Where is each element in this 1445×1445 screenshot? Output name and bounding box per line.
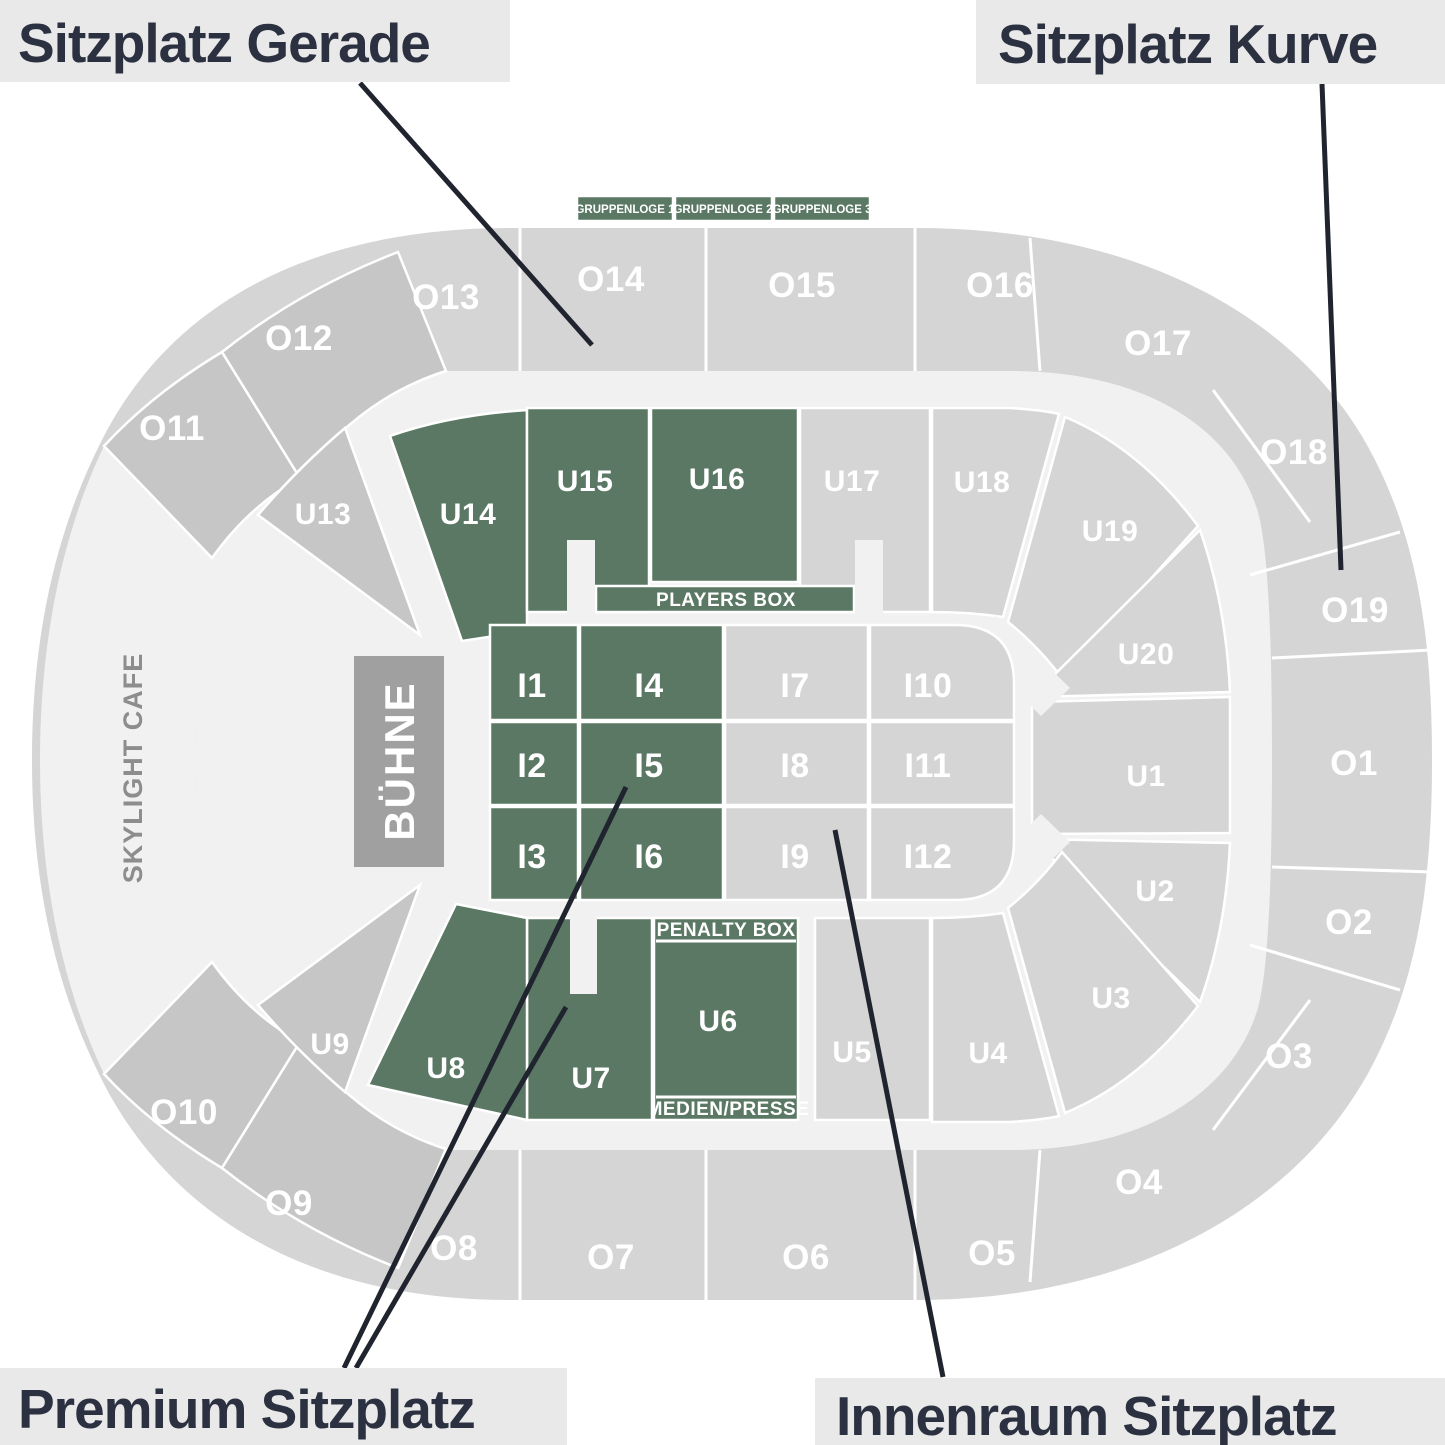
section-o8-label[interactable]: O8 <box>430 1229 478 1268</box>
gruppenloge-3-label: GRUPPENLOGE 3 <box>772 204 871 216</box>
section-u16-label: U16 <box>689 463 746 496</box>
legend-top-right-text: Sitzplatz Kurve <box>998 13 1377 75</box>
gruppenloge-2-label: GRUPPENLOGE 2 <box>673 204 772 216</box>
section-i3[interactable]: I3 <box>490 807 578 900</box>
section-o16[interactable]: O16 <box>966 266 1034 305</box>
section-o2-label[interactable]: O2 <box>1325 903 1373 942</box>
section-i7[interactable]: I7 <box>725 625 868 720</box>
section-o14-label[interactable]: O14 <box>577 260 645 299</box>
section-u6[interactable]: PENALTY BOX U6 MEDIEN/PRESSE <box>647 918 810 1120</box>
section-u4-label: U4 <box>968 1037 1007 1070</box>
gruppenloge-1-label: GRUPPENLOGE 1 <box>575 204 675 216</box>
gruppenloge-1[interactable]: GRUPPENLOGE 1 <box>575 196 675 221</box>
section-o9-label: O9 <box>265 1184 313 1223</box>
section-i1[interactable]: I1 <box>490 625 578 720</box>
section-u1-label: U1 <box>1126 760 1165 793</box>
section-u5-label: U5 <box>832 1036 871 1069</box>
section-u15-label: U15 <box>557 465 614 498</box>
section-u3-label: U3 <box>1091 982 1130 1015</box>
section-i11-label: I11 <box>905 747 952 785</box>
legend-top-left-text: Sitzplatz Gerade <box>18 12 430 74</box>
section-i12[interactable]: I12 <box>870 807 1014 900</box>
section-o10-label: O10 <box>150 1093 218 1132</box>
section-i7-label: I7 <box>780 667 809 705</box>
section-o6-label[interactable]: O6 <box>782 1238 830 1277</box>
section-o18-label[interactable]: O18 <box>1260 433 1328 472</box>
section-i4[interactable]: I4 <box>580 625 723 720</box>
section-o3[interactable]: O3 <box>1265 1037 1313 1076</box>
section-i6[interactable]: I6 <box>580 807 723 900</box>
section-o4-label[interactable]: O4 <box>1115 1163 1163 1202</box>
section-u8-label: U8 <box>426 1052 465 1085</box>
section-o4[interactable]: O4 <box>1115 1163 1163 1202</box>
section-u7-notch <box>570 916 597 994</box>
section-i2[interactable]: I2 <box>490 722 578 805</box>
gruppenloge-2[interactable]: GRUPPENLOGE 2 <box>673 196 772 221</box>
section-o15[interactable]: O15 <box>768 266 836 305</box>
section-i9-label: I9 <box>780 838 809 876</box>
section-i8[interactable]: I8 <box>725 722 868 805</box>
section-o3-label[interactable]: O3 <box>1265 1037 1313 1076</box>
section-i11[interactable]: I11 <box>870 722 1014 805</box>
players-box-label: PLAYERS BOX <box>656 590 796 611</box>
media-press-label: MEDIEN/PRESSE <box>647 1099 810 1120</box>
section-u7[interactable]: U7 <box>527 916 652 1120</box>
section-i10[interactable]: I10 <box>870 625 1014 720</box>
section-i10-label: I10 <box>904 667 953 705</box>
section-u9-label: U9 <box>310 1028 349 1061</box>
section-u19-label: U19 <box>1082 515 1139 548</box>
section-i8-label: I8 <box>780 747 809 785</box>
section-u1[interactable]: U1 <box>1032 697 1230 834</box>
section-o5-label[interactable]: O5 <box>968 1234 1016 1273</box>
section-i2-label: I2 <box>517 747 546 785</box>
section-o13-label[interactable]: O13 <box>412 278 480 317</box>
section-i5[interactable]: I5 <box>580 722 723 805</box>
stage: BÜHNE <box>354 656 444 867</box>
section-u18-label: U18 <box>954 466 1011 499</box>
section-u20-label: U20 <box>1118 638 1175 671</box>
section-i6-label: I6 <box>634 838 663 876</box>
section-i4-label: I4 <box>634 667 663 705</box>
section-o7[interactable]: O7 <box>587 1238 635 1277</box>
section-o18[interactable]: O18 <box>1260 433 1328 472</box>
gruppenloge-3[interactable]: GRUPPENLOGE 3 <box>772 196 871 221</box>
section-o16-label[interactable]: O16 <box>966 266 1034 305</box>
section-i3-label: I3 <box>517 838 546 876</box>
section-i1-label: I1 <box>517 667 546 705</box>
section-u16[interactable]: U16 <box>651 408 798 582</box>
section-o1[interactable]: O1 <box>1330 744 1378 783</box>
section-u17-label: U17 <box>824 465 881 498</box>
section-o17[interactable]: O17 <box>1124 324 1192 363</box>
section-o5[interactable]: O5 <box>968 1234 1016 1273</box>
section-o8[interactable]: O8 <box>430 1229 478 1268</box>
section-o7-label[interactable]: O7 <box>587 1238 635 1277</box>
legend-bottom-left: Premium Sitzplatz <box>0 1368 567 1445</box>
penalty-box-label: PENALTY BOX <box>657 920 796 941</box>
legend-bottom-right: Innenraum Sitzplatz <box>815 1378 1445 1445</box>
section-o14[interactable]: O14 <box>577 260 645 299</box>
section-u6-label: U6 <box>698 1005 737 1038</box>
section-u2-label: U2 <box>1135 875 1174 908</box>
legend-top-left: Sitzplatz Gerade <box>0 0 510 82</box>
section-o6[interactable]: O6 <box>782 1238 830 1277</box>
legend-top-right: Sitzplatz Kurve <box>976 0 1445 84</box>
section-u7-label: U7 <box>571 1062 610 1095</box>
stage-label: BÜHNE <box>376 681 423 840</box>
legend-bottom-right-text: Innenraum Sitzplatz <box>836 1385 1337 1445</box>
section-u14-label: U14 <box>440 498 497 531</box>
section-o1-label[interactable]: O1 <box>1330 744 1378 783</box>
section-o19-label[interactable]: O19 <box>1321 591 1389 630</box>
walkway-notch-right <box>855 540 883 614</box>
section-o2[interactable]: O2 <box>1325 903 1373 942</box>
section-o11-label: O11 <box>139 409 205 448</box>
section-i12-label: I12 <box>904 838 953 876</box>
arena-seating-map: O11 O12 O10 O9 O13 O14 O15 O16 O17 O18 O… <box>0 0 1445 1445</box>
walkway-notch-left <box>567 540 595 614</box>
section-o13[interactable]: O13 <box>412 278 480 317</box>
section-o15-label[interactable]: O15 <box>768 266 836 305</box>
field-grid: I1 I2 I3 I4 I5 I6 I7 I8 <box>490 625 1014 900</box>
section-i5-label: I5 <box>634 747 663 785</box>
section-u13-label: U13 <box>295 498 352 531</box>
legend-bottom-left-text: Premium Sitzplatz <box>18 1378 475 1440</box>
section-o19[interactable]: O19 <box>1321 591 1389 630</box>
section-o17-label[interactable]: O17 <box>1124 324 1192 363</box>
skylight-cafe-label: SKYLIGHT CAFE <box>118 653 148 884</box>
players-box: PLAYERS BOX <box>596 586 854 612</box>
section-o12-label: O12 <box>265 319 333 358</box>
